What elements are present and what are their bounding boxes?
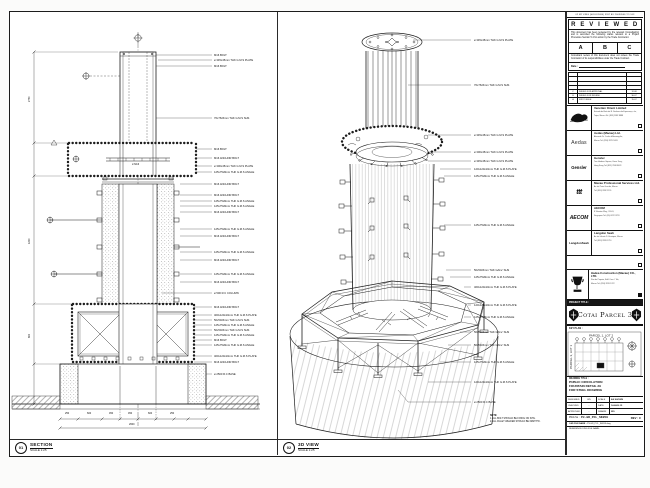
fax-header-line: 02 MY KING (HOLDINGS) 9997 AY 20030506 T… [567,12,643,18]
consultant-row-mps: ttt Macau Professional Services Ltd. Av.… [567,180,643,205]
gensler-logo: Gensler [567,156,592,180]
key-plan: PARCEL 1, LOT 2 PARCEL 3, LOT 1 [567,331,643,377]
view-scale: SCALE 1:25 [298,449,319,452]
view-number-badge: 01 [15,442,27,454]
status-option-a: A [569,43,593,53]
view-number-badge: 02 [283,442,295,454]
venetian-logo [567,106,592,130]
contractor-row: Hadea Construction (Macau) CO., LTD. Rua… [567,269,643,299]
revision-row: AFIRST ISSUE15-07 [569,98,641,102]
status-option-b: B [593,43,617,53]
aecom-logo: AECOM [567,206,592,230]
section-drawing [10,12,278,439]
checkbox [638,224,642,228]
checkbox-filled [638,293,642,297]
revision-code: REV : C [631,416,641,420]
ornament-icon [632,308,641,322]
drawing-title-line: FOR STEEL DRAWING [569,388,641,392]
consultant-row-venetian: Venetian Orient Limited Estrada da Baía … [567,105,643,130]
stamp-paragraph-1: This document has been reviewed by the r… [569,30,641,42]
drawing-sheet-scan: M16 BOLTø 345x45mm THK G.M.S PLATEM16 BO… [0,0,650,488]
consultant-row-aecom: AECOM AECOM 8 Shenton Way, #11-01, Singa… [567,205,643,230]
aedas-logo: Aedas [567,131,592,155]
drawing-title-block: DRAWING TITLE : PUBLIC CIRCULATION FOUNT… [567,377,643,397]
checkbox [638,149,642,153]
ornament-icon [569,308,578,322]
iso-drawing [278,12,560,439]
status-option-c: C [618,43,641,53]
iso-view-title: 02 3D VIEW SCALE 1:25 [278,439,565,455]
view-scale: SCALE 1:25 [30,449,53,452]
stamp-status-options: A B C [569,42,641,54]
checkbox [638,174,642,178]
checkbox [638,124,642,128]
general-notes: NOTE: 1. ALL BOLT SHOULD BE FIXING ON SI… [490,415,560,424]
sheet-border: M16 BOLTø 345x45mm THK G.M.S PLATEM16 BO… [9,11,645,457]
consultant-row-langdonseah: LangdonSeah Langdon Seah Av. do Infante … [567,230,643,255]
stamp-date-line: Date : [569,62,641,70]
viewport-3d-view: ø 345x45mm THK G.M.S PLATE76x76x5mm THK … [278,12,566,455]
viewport-section: M16 BOLTø 345x45mm THK G.M.S PLATEM16 BO… [10,12,278,455]
consultant-row-gensler: Gensler Gensler Two Harbour Square, Kwun… [567,155,643,180]
drawing-number-row: DWG No : P3-GR_PCL_SK059 REV : C [567,415,643,422]
revision-table: CISSUED FOR APPROVAL12-08 BISSUED FOR RE… [568,72,642,103]
drawing-number: P3-GR_PCL_SK059 [581,416,608,419]
project-title-banner: Cotai Parcel 3 [567,305,643,325]
key-plan-side-label: PARCEL 3, LOT 1 [569,344,573,368]
section-view-title: 01 SECTION SCALE 1:25 [10,439,277,455]
checkbox [638,263,642,267]
reviewed-title: R E V I E W E D [569,20,641,30]
mps-logo: ttt [567,181,592,205]
reference-dwg-row: REFERENCE DWG FILE NAME : [567,427,643,455]
note-line: 2. ALL FILLET WELDED SHOULD BE 6MM THK. [490,421,560,424]
consultant-row-aedas: Aedas Aedas (Macau) Ltd. Alameda Dr. Car… [567,130,643,155]
checkbox [638,199,642,203]
project-title-text: Cotai Parcel 3 [578,311,633,319]
reviewed-stamp: R E V I E W E D This document has been r… [568,19,642,71]
checkbox [638,249,642,253]
title-block: 02 MY KING (HOLDINGS) 9997 AY 20030506 T… [566,12,643,455]
consultant-row-empty [567,255,643,269]
key-plan-top-label: PARCEL 1, LOT 2 [589,333,613,337]
stamp-paragraph-2: Consultant review of this document does … [569,54,641,63]
contractor-logo [567,270,589,299]
langdonseah-logo: LangdonSeah [567,231,592,255]
